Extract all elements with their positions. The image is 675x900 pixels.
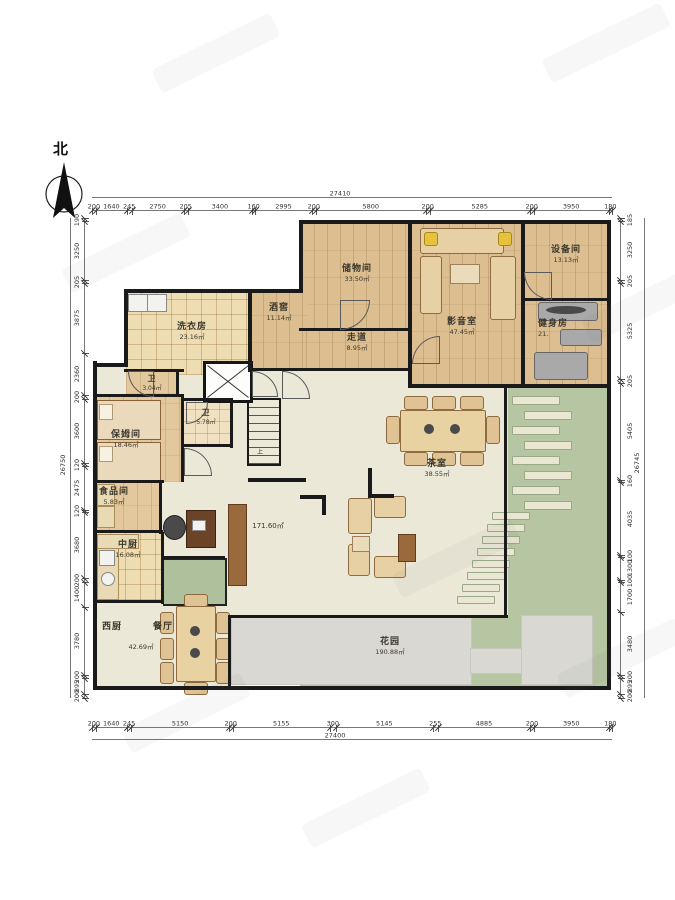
- room-area: 5.83㎡: [99, 499, 129, 507]
- dim-label: 3780: [74, 633, 81, 650]
- room-name: 卫: [196, 408, 215, 418]
- stepping-stone: [512, 396, 560, 405]
- room-label-chinese-kitchen: 中厨 16.08㎡: [115, 540, 140, 560]
- dim-label: 200: [74, 574, 81, 586]
- room-name: 餐厅: [153, 622, 173, 633]
- dim-label: 205: [627, 275, 634, 287]
- dim-label: 5325: [627, 323, 634, 340]
- stepping-stone: [524, 471, 572, 480]
- room-area: 3.04㎡: [142, 385, 161, 392]
- dim-label: 205: [627, 375, 634, 387]
- dim-total-bottom: 27400: [325, 733, 346, 740]
- dim-label: 3680: [74, 537, 81, 554]
- wall: [228, 617, 231, 688]
- dim-label: 3250: [74, 242, 81, 259]
- dim-label: 200: [421, 204, 433, 211]
- room-name: 花园: [375, 637, 404, 648]
- dim-label: 3250: [627, 242, 634, 259]
- room-area: 16.08㎡: [115, 552, 140, 560]
- dim-chain-left: 1903250205387523602003600120247512036802…: [84, 218, 85, 698]
- dim-label: 3950: [563, 721, 580, 728]
- stove: [99, 550, 115, 566]
- wall: [93, 600, 164, 603]
- dim-total-line-bottom: 27400: [92, 739, 612, 740]
- dim-label: 200: [88, 204, 100, 211]
- dining-table: [176, 606, 216, 682]
- wall: [521, 220, 525, 386]
- dining-chair: [184, 594, 208, 607]
- dim-label: 2360: [74, 366, 81, 383]
- room-area: 23.16㎡: [177, 334, 207, 342]
- wall: [183, 398, 233, 401]
- dim-label: 180: [604, 721, 616, 728]
- dim-label: 205: [179, 204, 191, 211]
- floor-plan: 储物间 33.50㎡ 酒窖 11.14㎡ 走道 8.95㎡ 影音室 47.45㎡…: [0, 0, 675, 900]
- wall: [607, 220, 611, 690]
- dim-label: 205: [74, 275, 81, 287]
- wall: [248, 289, 252, 372]
- stepping-stone: [477, 548, 515, 556]
- wall: [248, 368, 412, 371]
- tea-chair: [460, 396, 484, 410]
- wall: [230, 398, 233, 448]
- dim-label: 5800: [363, 204, 380, 211]
- dim-label: 3600: [74, 423, 81, 440]
- stepping-stone: [524, 501, 572, 510]
- room-label-nanny: 保姆间 18.46㎡: [111, 430, 141, 450]
- wall: [504, 386, 507, 617]
- dim-label: 200: [224, 721, 236, 728]
- room-label-dining-area: 42.69㎡: [128, 643, 153, 652]
- dim-label: 2995: [275, 204, 292, 211]
- room-name: 卫: [142, 374, 161, 384]
- wall: [300, 495, 326, 499]
- garden-terrace: [231, 617, 472, 685]
- dim-label: 4885: [476, 721, 493, 728]
- stepping-stone: [492, 512, 530, 520]
- stairs-up-label: 上: [257, 448, 263, 456]
- wall: [161, 556, 225, 559]
- room-name: 茶室: [424, 459, 449, 470]
- wall: [176, 369, 179, 397]
- dim-label: 5155: [273, 721, 290, 728]
- room-area: 5.78㎡: [196, 419, 215, 426]
- dining-chair: [160, 638, 174, 660]
- floorplan-canvas: 北 27410 20016402452750205340016029952005…: [0, 0, 675, 900]
- dim-label: 5150: [172, 721, 189, 728]
- treadmill-belt: [546, 306, 586, 314]
- room-label-corridor: 走道 8.95㎡: [347, 333, 368, 353]
- dim-label: 160: [627, 475, 634, 487]
- desk-chair: [163, 515, 186, 540]
- wall: [93, 394, 183, 397]
- stepping-stone: [512, 426, 560, 435]
- dim-total-line-top: 27410: [92, 197, 612, 198]
- room-area: 47.45㎡: [447, 329, 477, 337]
- wall: [93, 480, 164, 483]
- tv-cabinet: [398, 534, 416, 562]
- tea-chair: [460, 452, 484, 466]
- washer: [128, 294, 148, 312]
- room-area: 21.: [538, 331, 568, 339]
- living-sofa: [348, 498, 372, 534]
- dim-label: 5145: [376, 721, 393, 728]
- dim-label: 245: [123, 204, 135, 211]
- wall: [161, 532, 164, 604]
- room-label-bath2: 卫 5.78㎡: [196, 408, 215, 426]
- room-area: 190.88㎡: [375, 649, 404, 657]
- dim-label: 2475: [74, 480, 81, 497]
- room-area: 13.13㎡: [551, 257, 581, 265]
- dim-label: 180: [604, 204, 616, 211]
- watermark: [301, 767, 431, 848]
- dim-label: 245: [123, 721, 135, 728]
- wall: [368, 494, 394, 498]
- dim-label: 160: [247, 204, 259, 211]
- dim-label: 2750: [149, 204, 166, 211]
- dim-chain-top: 2001640245275020534001602995200580020052…: [92, 210, 612, 211]
- theater-table: [450, 264, 480, 284]
- stepping-stone: [467, 572, 505, 580]
- dim-label: 120: [74, 505, 81, 517]
- theater-sofa: [420, 256, 442, 314]
- room-label-dining: 餐厅: [153, 622, 173, 633]
- theater-sofa: [490, 256, 516, 320]
- stepping-stone: [462, 584, 500, 592]
- room-label-theater: 影音室 47.45㎡: [447, 317, 477, 337]
- room-area: 42.69㎡: [128, 644, 153, 652]
- stepping-stone: [457, 596, 495, 604]
- garden-terrace: [521, 615, 593, 685]
- room-label-pantry: 食品间 5.83㎡: [99, 487, 129, 507]
- dim-total-right: 26745: [634, 453, 641, 474]
- dim-label: 200: [74, 391, 81, 403]
- floor-lamp: [424, 232, 438, 246]
- tea-chair: [432, 396, 456, 410]
- room-area: 171.60㎡: [252, 522, 284, 530]
- dim-label: 3875: [74, 310, 81, 327]
- wall: [523, 298, 609, 301]
- dim-label: 200: [308, 204, 320, 211]
- wall: [299, 328, 412, 331]
- room-label-laundry: 洗衣房 23.16㎡: [177, 322, 207, 342]
- watermark: [151, 12, 281, 93]
- coffee-table: [352, 536, 370, 552]
- room-label-garden: 花园 190.88㎡: [375, 637, 404, 657]
- dim-label: 3950: [563, 204, 580, 211]
- room-label-wine-cellar: 酒窖 11.14㎡: [266, 303, 291, 323]
- room-name: 洗衣房: [177, 322, 207, 333]
- dim-label: 255: [429, 721, 441, 728]
- dim-label: 120: [74, 458, 81, 470]
- wall: [299, 220, 303, 293]
- dim-label: 200: [627, 690, 634, 702]
- dim-label: 190: [74, 213, 81, 225]
- dim-total-line-left: 26750: [70, 218, 71, 698]
- room-name: 走道: [347, 333, 368, 344]
- stepping-stone: [524, 411, 572, 420]
- wall: [124, 289, 128, 367]
- dim-label: 3400: [212, 204, 229, 211]
- dim-label: 4035: [627, 510, 634, 527]
- living-sofa: [374, 496, 406, 518]
- room-name: 保姆间: [111, 430, 141, 441]
- room-label-gym: 健身房 21.: [538, 319, 568, 339]
- wall: [93, 686, 611, 690]
- tea-set: [424, 424, 434, 434]
- wall: [228, 615, 508, 618]
- sink: [101, 572, 115, 586]
- stepping-stone: [482, 536, 520, 544]
- stairs-up-text: 上: [257, 449, 263, 456]
- watermark: [541, 2, 671, 83]
- dim-total-line-right: 26745: [644, 218, 645, 698]
- room-label-tea-room: 茶室 38.55㎡: [424, 459, 449, 479]
- room-name: 酒窖: [266, 303, 291, 314]
- room-name: 中厨: [115, 540, 140, 551]
- stepping-stone: [524, 441, 572, 450]
- room-name: 储物间: [342, 264, 372, 275]
- dim-chain-right: 1853250205532520554051604035100130010017…: [620, 218, 621, 698]
- washer: [147, 294, 167, 312]
- dim-label: 200: [526, 204, 538, 211]
- dim-label: 200: [74, 690, 81, 702]
- stairs: [247, 398, 281, 466]
- room-area: 11.14㎡: [266, 315, 291, 323]
- pillow: [99, 404, 113, 420]
- dining-set: [190, 626, 200, 636]
- tea-table: [400, 410, 486, 452]
- tea-chair: [486, 416, 500, 444]
- dim-total-left: 26750: [60, 455, 67, 476]
- garden-path: [470, 648, 526, 674]
- wall: [159, 482, 162, 534]
- tea-set: [450, 424, 460, 434]
- tea-chair: [404, 396, 428, 410]
- dim-label: 300: [327, 721, 339, 728]
- cabinet: [228, 504, 247, 586]
- dining-set: [190, 648, 200, 658]
- wall: [93, 361, 97, 690]
- stepping-stone: [512, 456, 560, 465]
- dim-label: 1700: [627, 589, 634, 606]
- dim-label: 3480: [627, 635, 634, 652]
- wall: [93, 530, 163, 533]
- room-label-equipment: 设备间 13.13㎡: [551, 245, 581, 265]
- room-area: 18.46㎡: [111, 442, 141, 450]
- dim-label: 185: [627, 213, 634, 225]
- room-name: 影音室: [447, 317, 477, 328]
- wall: [408, 384, 611, 388]
- wall: [183, 444, 233, 447]
- room-name: 健身房: [538, 319, 568, 330]
- dim-label: 1400: [74, 586, 81, 603]
- dim-chain-bottom: 2001640245515020051553005145255488520039…: [92, 727, 612, 728]
- dim-label: 5285: [471, 204, 488, 211]
- dim-label: 200: [88, 721, 100, 728]
- room-area: 8.95㎡: [347, 345, 368, 353]
- wall: [248, 478, 306, 482]
- room-area: 38.55㎡: [424, 471, 449, 479]
- wall: [124, 289, 303, 293]
- room-area: 33.50㎡: [342, 276, 372, 284]
- room-label-storage: 储物间 33.50㎡: [342, 264, 372, 284]
- room-name: 西厨: [102, 622, 122, 633]
- gym-machine: [534, 352, 588, 380]
- dim-total-top: 27410: [330, 191, 351, 198]
- dim-label: 5405: [627, 423, 634, 440]
- room-name: 设备间: [551, 245, 581, 256]
- dim-label: 1640: [103, 721, 120, 728]
- floor-lamp: [498, 232, 512, 246]
- pantry-shelf: [97, 506, 115, 528]
- wall: [299, 220, 611, 224]
- wall: [93, 363, 126, 367]
- room-name: 食品间: [99, 487, 129, 498]
- room-label-western-kitchen: 西厨: [102, 622, 122, 633]
- elevator: [203, 361, 253, 403]
- room-label-bath1: 卫 3.04㎡: [142, 374, 161, 392]
- stepping-stone: [512, 486, 560, 495]
- tea-chair: [386, 416, 400, 444]
- dim-label: 100: [627, 575, 634, 587]
- dining-chair: [160, 662, 174, 684]
- dim-label: 1640: [103, 204, 120, 211]
- room-label-living-area: 171.60㎡: [252, 521, 284, 530]
- dim-label: 200: [526, 721, 538, 728]
- desk-item: [192, 520, 206, 531]
